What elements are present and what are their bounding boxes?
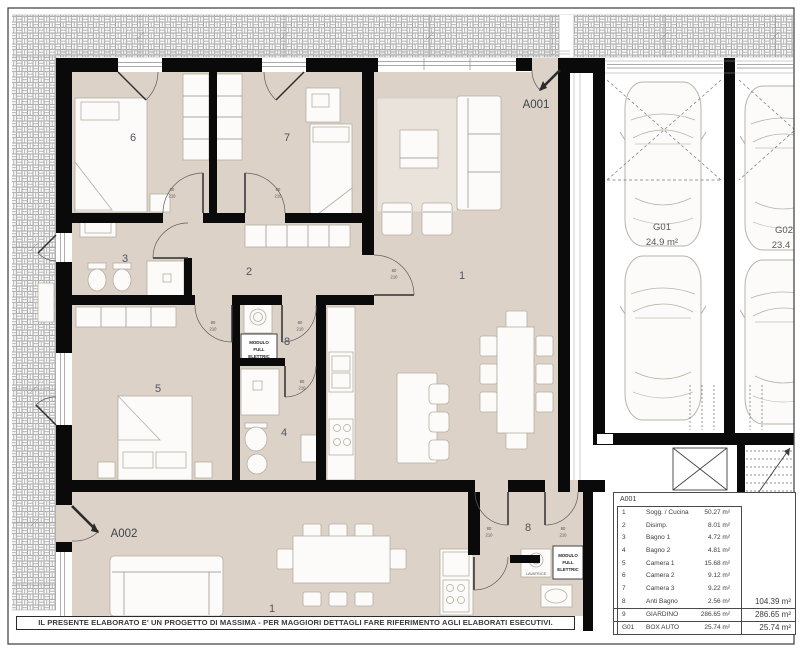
table-row: 9GIARDINO286.65 m²286.65 m² [614,608,795,621]
garage-area-g02: 23.4 [772,240,791,251]
svg-text:MODULO: MODULO [249,340,269,345]
svg-text:FULL: FULL [562,560,574,565]
room-label-camera2: 6 [130,132,136,144]
room-label-antibagno: 8 [284,336,290,348]
garage [605,61,800,430]
room-label-disimpegno: 2 [246,266,252,278]
svg-text:210: 210 [560,533,568,538]
garage-label-g02: G02 [775,225,793,236]
garage-area-g01: 24.9 m² [646,237,678,248]
svg-text:210: 210 [169,194,177,199]
elevator-icon [673,448,727,490]
svg-text:80: 80 [300,379,305,384]
svg-text:210: 210 [486,533,494,538]
svg-text:210: 210 [210,327,218,332]
car-icon [620,82,800,424]
svg-text:210: 210 [275,194,283,199]
room-label-bagno1: 3 [122,253,128,265]
table-row: 2Disimp.8.01 m² [614,519,795,532]
svg-text:80: 80 [276,187,281,192]
svg-text:80: 80 [298,320,303,325]
lavatrice-label: LAVATRICE [526,572,547,576]
svg-text:80: 80 [211,320,216,325]
room-label-a002-8: 8 [525,522,531,534]
apartment-label-a001: A001 [523,99,550,111]
floor-plan-sheet: 6 7 3 2 5 8 4 1 8 1 A001 A002 G01 24.9 m… [0,0,800,651]
table-row: 8Anti Bagno2.56 m²104.39 m² [614,595,795,608]
table-row: 5Camera 115.68 m² [614,557,795,570]
svg-text:MODULO: MODULO [558,553,578,558]
table-title: A001 [614,493,795,506]
room-label-camera1: 5 [155,383,161,395]
table-row: 1Sogg. / Cucina50.27 m² [614,506,795,519]
svg-text:ELETTRIC: ELETTRIC [248,354,270,359]
disclaimer-banner: IL PRESENTE ELABORATO E' UN PROGETTO DI … [16,616,575,630]
room-label-soggiorno: 1 [459,270,465,282]
table-row: 4Bagno 24.81 m² [614,544,795,557]
table-rows: 1Sogg. / Cucina50.27 m² 2Disimp.8.01 m² … [614,506,795,634]
garage-label-g01: G01 [653,222,671,233]
svg-text:210: 210 [299,386,307,391]
table-row: 3Bagno 14.72 m² [614,531,795,544]
svg-text:210: 210 [391,275,399,280]
svg-text:80: 80 [170,187,175,192]
table-row: 7Camera 39.22 m² [614,582,795,595]
garage-door-gap [597,434,613,444]
svg-text:80: 80 [561,526,566,531]
svg-text:FULL: FULL [253,347,265,352]
room-schedule-table: A001 1Sogg. / Cucina50.27 m² 2Disimp.8.0… [613,492,796,635]
svg-text:80: 80 [487,526,492,531]
room-label-a002-living: 1 [269,603,275,615]
room-label-camera3: 7 [284,132,290,144]
table-row: G01BOX AUTO25.74 m²25.74 m² [614,621,795,634]
svg-text:ELETTRIC: ELETTRIC [557,567,579,572]
svg-text:210: 210 [297,327,305,332]
apartment-label-a002: A002 [111,528,138,540]
svg-text:80: 80 [392,268,397,273]
table-row: 6Camera 29.12 m² [614,570,795,583]
room-label-bagno2: 4 [281,427,287,439]
